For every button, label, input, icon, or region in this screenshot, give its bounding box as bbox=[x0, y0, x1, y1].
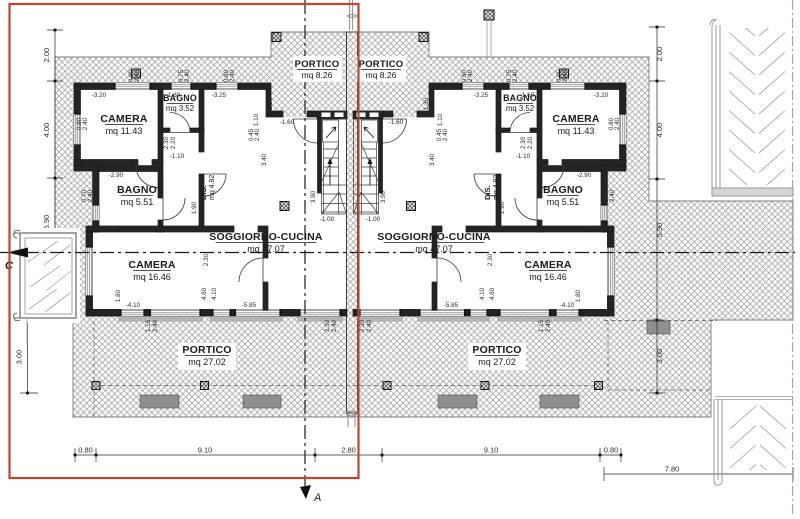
svg-text:1.30: 1.30 bbox=[423, 97, 430, 110]
svg-text:PORTICO: PORTICO bbox=[295, 59, 340, 70]
svg-text:-2.90: -2.90 bbox=[577, 172, 592, 179]
svg-text:2.40: 2.40 bbox=[562, 69, 569, 82]
svg-text:-4.10: -4.10 bbox=[560, 302, 575, 309]
svg-text:-1.60: -1.60 bbox=[166, 92, 181, 99]
svg-text:0.80: 0.80 bbox=[604, 446, 619, 455]
svg-text:2.30: 2.30 bbox=[324, 319, 331, 332]
svg-text:-5.85: -5.85 bbox=[444, 302, 459, 309]
svg-text:2.40: 2.40 bbox=[331, 319, 338, 332]
svg-text:1.30: 1.30 bbox=[267, 97, 274, 110]
svg-text:2.30: 2.30 bbox=[520, 136, 527, 149]
svg-text:mq 5.51: mq 5.51 bbox=[121, 197, 154, 207]
svg-text:5.90: 5.90 bbox=[42, 215, 51, 230]
svg-text:-3.25: -3.25 bbox=[474, 92, 489, 99]
svg-text:mq 16.46: mq 16.46 bbox=[529, 272, 567, 282]
svg-text:2.40: 2.40 bbox=[82, 117, 89, 130]
svg-text:-3.20: -3.20 bbox=[594, 92, 609, 99]
svg-text:-3.00: -3.00 bbox=[585, 225, 600, 232]
svg-text:PORTICO: PORTICO bbox=[472, 344, 521, 356]
svg-text:2.40: 2.40 bbox=[614, 117, 621, 130]
svg-text:-1.00: -1.00 bbox=[366, 216, 381, 223]
svg-text:4.60: 4.60 bbox=[201, 287, 208, 300]
svg-text:mq 3.52: mq 3.52 bbox=[506, 104, 534, 113]
svg-text:mq 5.51: mq 5.51 bbox=[547, 197, 580, 207]
svg-text:DIS.: DIS. bbox=[199, 185, 208, 200]
svg-text:4.00: 4.00 bbox=[655, 123, 664, 138]
svg-text:1.90: 1.90 bbox=[499, 201, 506, 214]
svg-text:4.10: 4.10 bbox=[479, 287, 486, 300]
svg-text:2.40: 2.40 bbox=[87, 189, 94, 202]
svg-text:2.00: 2.00 bbox=[42, 48, 51, 63]
svg-text:4.10: 4.10 bbox=[211, 287, 218, 300]
svg-text:1.10: 1.10 bbox=[253, 113, 260, 126]
svg-text:1.80: 1.80 bbox=[575, 289, 582, 302]
svg-text:3.40: 3.40 bbox=[429, 153, 436, 166]
svg-text:mq 3.52: mq 3.52 bbox=[166, 104, 194, 113]
svg-text:3.90: 3.90 bbox=[310, 190, 317, 203]
svg-text:2.40: 2.40 bbox=[134, 69, 141, 82]
svg-text:2.40: 2.40 bbox=[254, 128, 261, 141]
svg-text:2.40: 2.40 bbox=[545, 319, 552, 332]
svg-text:mq 8.26: mq 8.26 bbox=[366, 70, 397, 80]
svg-text:-1.10: -1.10 bbox=[170, 153, 185, 160]
svg-text:-3.00: -3.00 bbox=[101, 225, 116, 232]
svg-text:mq 4.92: mq 4.92 bbox=[209, 175, 216, 200]
svg-text:mq 11.43: mq 11.43 bbox=[558, 126, 595, 136]
svg-text:SOGGIORNO-CUCINA: SOGGIORNO-CUCINA bbox=[377, 231, 491, 243]
svg-text:9.10: 9.10 bbox=[484, 446, 499, 455]
svg-text:2.30: 2.30 bbox=[163, 136, 170, 149]
svg-text:mq 11.43: mq 11.43 bbox=[106, 126, 143, 136]
svg-text:7.80: 7.80 bbox=[665, 465, 680, 474]
svg-text:2.30: 2.30 bbox=[359, 319, 366, 332]
svg-text:2.40: 2.40 bbox=[229, 69, 236, 82]
svg-text:A: A bbox=[313, 492, 321, 504]
svg-text:2.40: 2.40 bbox=[467, 69, 474, 82]
svg-text:-1.60: -1.60 bbox=[389, 119, 404, 126]
svg-text:1.15: 1.15 bbox=[538, 319, 545, 332]
svg-text:mq 27.02: mq 27.02 bbox=[188, 357, 226, 367]
svg-text:-3.70: -3.70 bbox=[83, 165, 98, 172]
svg-text:CAMERA: CAMERA bbox=[552, 113, 599, 125]
svg-text:-1.00: -1.00 bbox=[320, 216, 335, 223]
svg-text:-5.85: -5.85 bbox=[242, 302, 257, 309]
svg-text:PORTICO: PORTICO bbox=[359, 59, 404, 70]
svg-text:2.30: 2.30 bbox=[203, 253, 210, 266]
svg-text:2.40: 2.40 bbox=[512, 69, 519, 82]
svg-text:2.20: 2.20 bbox=[527, 136, 534, 149]
svg-text:mq 16.46: mq 16.46 bbox=[133, 272, 171, 282]
svg-text:1.90: 1.90 bbox=[191, 201, 198, 214]
svg-text:1.80: 1.80 bbox=[115, 289, 122, 302]
svg-text:5.90: 5.90 bbox=[655, 223, 664, 238]
svg-text:3.90: 3.90 bbox=[380, 190, 387, 203]
svg-text:0.80: 0.80 bbox=[78, 446, 93, 455]
svg-text:-3.25: -3.25 bbox=[212, 92, 227, 99]
svg-text:CAMERA: CAMERA bbox=[100, 113, 147, 125]
svg-text:-3.70: -3.70 bbox=[603, 165, 618, 172]
svg-text:2.40: 2.40 bbox=[152, 319, 159, 332]
svg-text:4.00: 4.00 bbox=[42, 123, 51, 138]
svg-text:SOGGIORNO-CUCINA: SOGGIORNO-CUCINA bbox=[209, 231, 323, 243]
svg-text:-1.60: -1.60 bbox=[520, 92, 535, 99]
svg-text:BAGNO: BAGNO bbox=[117, 184, 157, 196]
svg-text:2.40: 2.40 bbox=[442, 128, 449, 141]
svg-text:-1.10: -1.10 bbox=[516, 153, 531, 160]
svg-text:1.10: 1.10 bbox=[437, 113, 444, 126]
svg-text:mq 8.26: mq 8.26 bbox=[302, 70, 333, 80]
svg-text:2.80: 2.80 bbox=[341, 446, 356, 455]
svg-text:mq 4.92: mq 4.92 bbox=[493, 175, 500, 200]
svg-text:-4.10: -4.10 bbox=[126, 302, 141, 309]
svg-text:DIS.: DIS. bbox=[483, 185, 492, 200]
svg-text:2.40: 2.40 bbox=[366, 319, 373, 332]
svg-text:-1.60: -1.60 bbox=[280, 119, 295, 126]
svg-text:mq 27.02: mq 27.02 bbox=[478, 357, 516, 367]
svg-text:2.00: 2.00 bbox=[655, 47, 664, 62]
svg-text:2.40: 2.40 bbox=[609, 189, 616, 202]
svg-text:CAMERA: CAMERA bbox=[524, 259, 571, 271]
svg-text:9.10: 9.10 bbox=[198, 446, 213, 455]
svg-text:2.30: 2.30 bbox=[487, 253, 494, 266]
svg-text:2.20: 2.20 bbox=[170, 136, 177, 149]
svg-text:PORTICO: PORTICO bbox=[182, 344, 231, 356]
svg-text:2.40: 2.40 bbox=[184, 69, 191, 82]
svg-text:3.00: 3.00 bbox=[655, 349, 664, 364]
svg-text:1.15: 1.15 bbox=[145, 319, 152, 332]
svg-text:-3.20: -3.20 bbox=[92, 92, 107, 99]
svg-text:BAGNO: BAGNO bbox=[543, 184, 583, 196]
svg-text:CAMERA: CAMERA bbox=[128, 259, 175, 271]
svg-text:-2.90: -2.90 bbox=[109, 172, 124, 179]
svg-text:4.60: 4.60 bbox=[489, 287, 496, 300]
svg-text:3.40: 3.40 bbox=[261, 153, 268, 166]
svg-text:3.00: 3.00 bbox=[15, 350, 24, 365]
